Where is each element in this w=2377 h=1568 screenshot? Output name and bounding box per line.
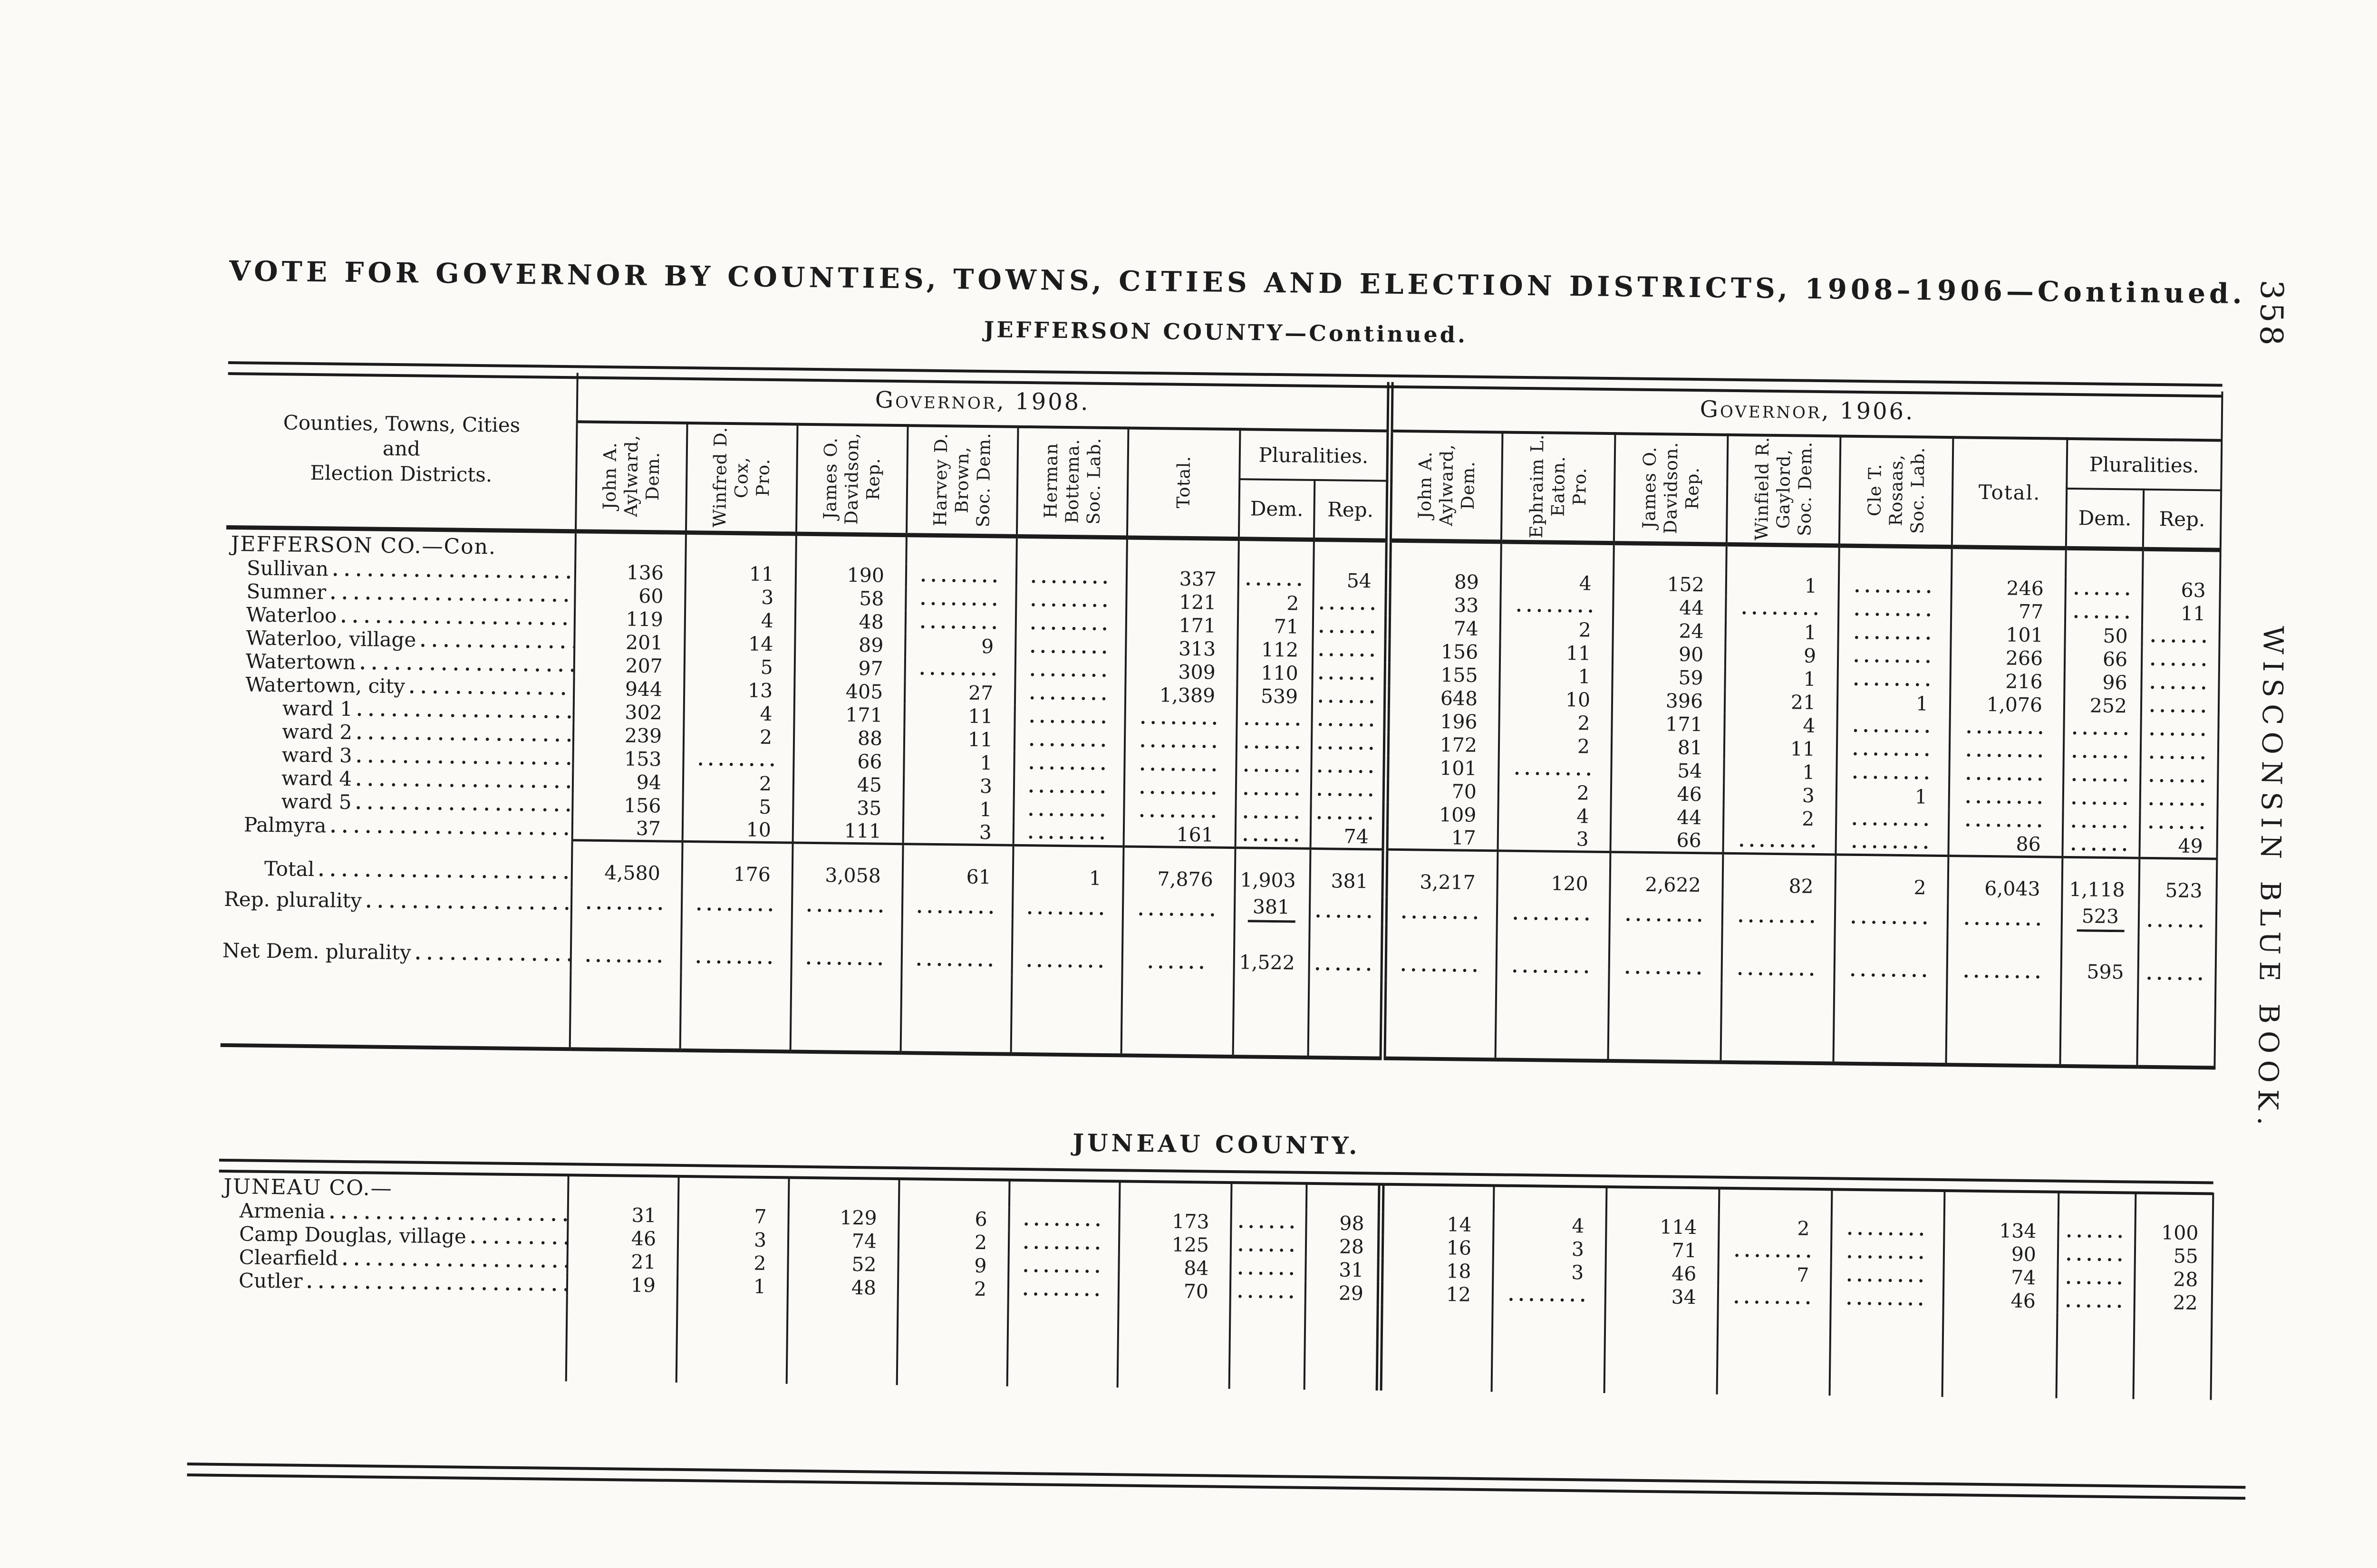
value-cell: 46 [1605, 1261, 1719, 1286]
value-cell: ........ [1610, 899, 1723, 928]
value-cell: 4 [1498, 803, 1611, 828]
value-cell [1388, 540, 1501, 570]
row-label: ward 4 [281, 766, 352, 790]
row-label: ward 5 [281, 789, 352, 814]
row-label-cell: ward 5.................................. [223, 789, 573, 816]
value-cell: ........ [1609, 926, 1722, 984]
dot-leader: .................................. [302, 1272, 566, 1295]
value-cell: 3,217 [1384, 849, 1498, 898]
value-cell: 31 [1305, 1258, 1381, 1282]
value-cell: ........ [1014, 751, 1125, 776]
filler-cell [1121, 977, 1234, 1057]
dot-leader: .................................. [351, 793, 571, 816]
value-cell: ........ [682, 889, 792, 917]
value-cell: ...... [1309, 923, 1384, 980]
value-cell: ........ [1831, 1240, 1944, 1265]
value-cell: 2 [1723, 806, 1836, 831]
page-number: 358 [2253, 279, 2290, 348]
value-cell: ........ [906, 564, 1017, 588]
value-cell: 11 [1500, 640, 1613, 665]
value-cell: 54 [1314, 568, 1389, 593]
value-cell: 60 [575, 583, 686, 608]
candidate-name: Cle T.Rosaas,Soc. Lab. [1864, 446, 1929, 534]
value-cell: 121 [1126, 589, 1238, 614]
value-cell: 88 [794, 725, 905, 750]
page-subtitle: JEFFERSON COUNTY—Continued. [229, 308, 2223, 356]
value-cell: 152 [1614, 572, 1727, 596]
value-cell: ........ [901, 918, 1012, 976]
value-cell: 31 [568, 1202, 678, 1227]
value-cell: ...... [1312, 731, 1387, 756]
value-cell: ........ [1948, 903, 2062, 932]
value-cell: 1 [903, 797, 1014, 821]
filler-cell [680, 972, 792, 1052]
candidate-header: HermanBottema.Soc. Lab. [1017, 427, 1129, 538]
value-cell [906, 535, 1017, 565]
value-cell: ........ [1838, 621, 1951, 645]
value-cell: ........ [1949, 762, 2064, 787]
value-cell: ...... [1231, 1233, 1306, 1258]
value-cell: 84 [1119, 1255, 1231, 1280]
total-header: Total. [1952, 437, 2068, 548]
value-cell [1726, 545, 1839, 575]
value-cell: 2 [1500, 617, 1614, 642]
value-cell: 4,580 [571, 840, 682, 889]
row-label-cell: Watertown...............................… [225, 649, 575, 676]
value-cell: 12 [1380, 1282, 1493, 1307]
value-cell: 2,622 [1610, 852, 1723, 901]
filler-cell [676, 1297, 788, 1384]
value-cell: ........ [1831, 1217, 1944, 1241]
value-cell [1832, 1188, 1945, 1218]
filler-cell [1383, 980, 1497, 1060]
dot-leader: .................................. [338, 1250, 567, 1272]
row-label: ward 3 [281, 743, 352, 767]
row-label-cell: Cutler.................................. [218, 1269, 568, 1296]
value-cell: ...... [2142, 624, 2220, 648]
value-cell [1314, 540, 1389, 569]
filler-cell [1118, 1302, 1230, 1389]
value-cell: ........ [1721, 928, 1835, 985]
value-cell: ........ [1015, 705, 1125, 730]
value-cell: 171 [1126, 613, 1238, 637]
value-cell: 153 [573, 746, 684, 771]
value-cell: 16 [1381, 1235, 1494, 1260]
value-cell [1120, 1180, 1232, 1210]
value-cell: 246 [1952, 576, 2066, 600]
value-cell: ........ [1831, 1287, 1944, 1311]
value-cell: 4 [684, 701, 794, 726]
row-label-cell: Sullivan................................… [226, 556, 576, 583]
value-cell: ...... [1312, 662, 1387, 686]
value-cell: 34 [1605, 1284, 1719, 1309]
value-cell: 313 [1126, 636, 1238, 661]
row-label: Rep. plurality [224, 887, 362, 912]
value-cell: 74 [788, 1228, 899, 1253]
value-cell [796, 534, 907, 564]
value-cell: ........ [1950, 715, 2064, 740]
value-cell: 1 [1836, 784, 1950, 808]
value-cell: 46 [1611, 781, 1724, 806]
book-margin-title: WISCONSIN BLUE BOOK. [2251, 625, 2290, 1132]
value-cell: 28 [2135, 1267, 2213, 1291]
value-cell: 18 [1380, 1259, 1493, 1283]
value-cell: 48 [795, 609, 906, 634]
value-cell: ........ [681, 916, 792, 973]
value-cell [1016, 537, 1127, 567]
value-cell: ........ [1014, 775, 1125, 799]
value-cell: ...... [1312, 708, 1387, 732]
value-cell: ........ [1947, 930, 2061, 988]
plurality-col-header: Rep. [1314, 480, 1389, 541]
value-cell: ........ [1013, 893, 1123, 921]
value-cell: 13 [684, 678, 795, 702]
value-cell: 523 [2062, 904, 2139, 933]
value-cell: 71 [1238, 614, 1314, 638]
value-cell: 94 [573, 770, 684, 794]
value-cell: 114 [1606, 1214, 1719, 1239]
plurality-subtraction-value: 381 [1247, 895, 1295, 923]
value-cell: ........ [1722, 901, 1836, 929]
filler-cell [1233, 978, 1309, 1058]
dot-leader: .................................. [362, 892, 570, 914]
row-label: Waterloo, village [246, 626, 416, 651]
value-cell: 24 [1613, 618, 1726, 643]
value-cell: ........ [1838, 644, 1951, 669]
value-cell: 1,076 [1950, 692, 2065, 717]
value-cell: ........ [906, 610, 1016, 635]
row-label-cell: JUNEAU CO.— [219, 1170, 569, 1202]
row-label: Sullivan [247, 556, 329, 580]
value-cell: ...... [2065, 600, 2143, 625]
value-cell: ........ [1015, 682, 1126, 706]
total-label: Total. [1173, 456, 1195, 509]
value-cell: ...... [2062, 833, 2140, 858]
value-cell: ........ [1009, 1208, 1120, 1232]
value-cell: 2 [899, 1230, 1009, 1254]
value-cell: ...... [2058, 1289, 2135, 1314]
value-cell: 61 [902, 844, 1013, 893]
row-label-cell: Armenia.................................… [218, 1199, 568, 1226]
value-cell: 1 [904, 750, 1015, 775]
value-cell: 100 [2135, 1221, 2213, 1245]
value-cell: 337 [1127, 566, 1239, 591]
value-cell: 3 [903, 820, 1014, 845]
candidate-name: Harvey D.Brown,Soc. Dem. [929, 432, 995, 528]
filler-cell [1946, 986, 2061, 1066]
row-label: Palmyra [244, 813, 327, 837]
value-cell: ...... [1230, 1280, 1306, 1304]
filler-cell [1830, 1310, 1943, 1397]
row-label-cell: Palmyra.................................… [223, 812, 573, 840]
candidate-name: Ephraim L.Eaton.Pro. [1526, 434, 1591, 539]
value-cell: 2 [677, 1251, 788, 1275]
row-label-cell: Sumner.................................. [225, 579, 575, 606]
value-cell: ...... [2063, 763, 2141, 788]
value-cell: ........ [1949, 785, 2064, 810]
value-cell: 89 [795, 632, 906, 657]
value-cell: 89 [1388, 569, 1501, 594]
value-cell: 120 [1497, 851, 1610, 900]
value-cell: ...... [2141, 694, 2219, 718]
value-cell: 381 [1235, 895, 1310, 923]
juneau-county-table: JUNEAU CO.—Armenia......................… [217, 1170, 2214, 1400]
value-cell: 1 [1724, 760, 1837, 784]
value-cell [899, 1178, 1010, 1208]
value-cell: 156 [572, 793, 683, 818]
value-cell: 112 [1237, 637, 1313, 662]
value-cell: ........ [1125, 706, 1237, 731]
value-cell [2135, 1192, 2213, 1222]
value-cell [1606, 1186, 1720, 1216]
row-label-cell: Rep. plurality..........................… [222, 884, 572, 914]
value-cell: ........ [570, 915, 681, 972]
value-cell: ...... [1311, 801, 1386, 826]
value-cell [1944, 1190, 2059, 1220]
value-cell: ........ [1008, 1254, 1119, 1279]
value-cell: 71 [1606, 1238, 1719, 1262]
dot-leader: .................................. [329, 560, 575, 583]
plurality-col-header: Dem. [1239, 479, 1314, 540]
candidate-header: Ephraim L.Eaton.Pro. [1501, 432, 1615, 543]
value-cell: 14 [685, 631, 795, 656]
value-cell: 125 [1119, 1232, 1231, 1257]
value-cell: ...... [2063, 810, 2140, 834]
value-cell: 405 [794, 679, 905, 703]
value-cell: ........ [1383, 924, 1497, 981]
pluralities-header: Pluralities. [2067, 439, 2222, 491]
value-cell: 45 [793, 772, 904, 797]
value-cell: 6,043 [1948, 856, 2062, 904]
row-label-cell: ward 1.................................. [224, 696, 574, 723]
row-label-cell: Watertown, city.........................… [224, 673, 574, 700]
group-title: Governor, 1906. [1390, 382, 2222, 441]
value-cell: 37 [572, 816, 683, 841]
value-cell: 66 [793, 749, 904, 773]
value-cell: 944 [574, 676, 685, 701]
value-cell: 58 [795, 586, 906, 610]
value-cell: 111 [793, 818, 904, 844]
value-cell: ........ [1016, 612, 1127, 636]
dot-leader: .................................. [352, 723, 572, 746]
table-header: Counties, Towns, CitiesandElection Distr… [226, 369, 2222, 550]
value-cell: 7 [678, 1204, 789, 1229]
value-cell [2058, 1191, 2136, 1221]
value-cell: 309 [1125, 659, 1237, 684]
value-cell: ...... [1236, 777, 1312, 801]
candidate-name: John A.Aylward,Dem. [599, 434, 664, 517]
row-label-cell: JEFFERSON CO.—Con. [226, 528, 576, 560]
value-cell: 239 [573, 723, 684, 748]
value-cell [1719, 1187, 1832, 1217]
value-cell: ........ [1949, 808, 2063, 833]
value-cell: 1,389 [1125, 683, 1237, 707]
value-cell: ........ [1014, 798, 1124, 823]
candidate-header: Harvey D.Brown,Soc. Dem. [907, 425, 1018, 536]
value-cell: ...... [2141, 717, 2219, 741]
candidate-header: James O.Davidson.Rep. [1614, 433, 1728, 544]
value-cell: 2 [1835, 855, 1948, 904]
filler-cell [1011, 976, 1122, 1056]
candidate-name: James O.Davidson.Rep. [1638, 441, 1704, 534]
value-cell: 29 [1305, 1281, 1381, 1305]
value-cell: ...... [2140, 764, 2218, 788]
filler-cell [791, 973, 902, 1053]
row-header-line: Election Districts. [227, 460, 576, 489]
row-label: Total [264, 857, 315, 881]
value-cell: 2 [684, 724, 794, 749]
value-cell: 201 [574, 630, 685, 654]
juneau-rows: JUNEAU CO.—Armenia......................… [217, 1170, 2213, 1400]
row-label: Watertown, city [245, 673, 405, 698]
value-cell: ........ [1014, 821, 1124, 847]
value-cell: ...... [1236, 824, 1311, 848]
row-label-cell: ward 2.................................. [224, 719, 574, 746]
value-cell: 66 [1610, 828, 1723, 853]
dot-leader: .................................. [337, 606, 574, 629]
row-label: ward 1 [282, 696, 353, 721]
value-cell: 595 [2061, 932, 2138, 989]
filler-cell [1495, 981, 1609, 1061]
value-cell: 2 [1238, 591, 1314, 615]
value-cell: ........ [1837, 714, 1950, 739]
value-cell: 11 [2142, 601, 2220, 625]
value-cell: 1,118 [2062, 857, 2139, 905]
value-cell: 1 [677, 1274, 788, 1299]
candidate-header: Cle T.Rosaas,Soc. Lab. [1839, 436, 1953, 547]
value-cell: 48 [788, 1275, 899, 1299]
filler-cell [1304, 1304, 1380, 1391]
plurality-col-header: Dem. [2066, 489, 2144, 549]
row-label-cell: Waterloo, village.......................… [225, 626, 575, 653]
filler-cell [1308, 979, 1384, 1058]
double-rule-bottom [187, 1462, 2245, 1500]
value-cell: 2 [683, 771, 794, 796]
value-cell: 11 [686, 561, 796, 586]
filler-cell [2133, 1314, 2212, 1400]
value-cell: 52 [788, 1251, 899, 1276]
value-cell: 190 [796, 562, 907, 587]
value-cell: 77 [1951, 599, 2066, 624]
value-cell: 161 [1124, 822, 1236, 847]
row-label: Waterloo [246, 603, 337, 627]
value-cell: ........ [791, 917, 902, 975]
value-cell: ........ [905, 657, 1015, 682]
value-cell: ...... [2140, 810, 2218, 835]
value-cell: 6 [899, 1206, 1009, 1231]
value-cell: ........ [1839, 574, 1952, 599]
value-cell: 35 [793, 795, 904, 820]
value-cell: 266 [1951, 645, 2065, 670]
value-cell: 9 [1725, 643, 1838, 668]
value-cell [1614, 543, 1727, 573]
value-cell: ........ [1500, 594, 1614, 618]
value-cell: 136 [575, 560, 686, 585]
value-cell: 70 [1119, 1279, 1231, 1303]
filler-cell [1942, 1311, 2058, 1398]
value-cell: 49 [2139, 834, 2217, 858]
value-cell: ........ [1837, 667, 1951, 692]
row-header: Counties, Towns, CitiesandElection Distr… [226, 369, 578, 531]
row-label-cell: ward 4.................................. [223, 766, 573, 793]
filler-cell [2056, 1313, 2134, 1399]
row-label: Armenia [239, 1199, 325, 1223]
value-cell: 3 [678, 1227, 789, 1252]
value-cell: 10 [683, 818, 793, 843]
row-label: ward 2 [282, 720, 353, 744]
value-cell: 176 [682, 841, 792, 890]
value-cell: 3 [1724, 783, 1837, 808]
value-cell: 171 [1612, 712, 1725, 736]
value-cell: 74 [1388, 616, 1501, 640]
value-cell: ...... [1238, 568, 1314, 592]
filler-cell [221, 967, 571, 1049]
value-cell: ...... [2141, 671, 2219, 695]
value-cell: ........ [1831, 1263, 1944, 1288]
value-cell: ...... [1310, 896, 1385, 924]
filler-cell [1833, 985, 1947, 1065]
dot-leader: .................................. [352, 747, 572, 769]
value-cell: 55 [2135, 1244, 2213, 1268]
plurality-col-header: Rep. [2143, 490, 2221, 550]
value-cell: 3,058 [792, 843, 903, 892]
value-cell: ........ [1838, 597, 1952, 622]
value-cell: ........ [1016, 565, 1127, 590]
value-cell: 19 [567, 1272, 678, 1297]
value-cell: ........ [1015, 635, 1126, 660]
value-cell: ........ [1719, 1239, 1832, 1264]
dot-leader: .................................. [314, 860, 571, 883]
value-cell: 90 [1944, 1241, 2058, 1266]
value-cell: 648 [1387, 685, 1500, 710]
row-label-cell: Net Dem. plurality......................… [222, 911, 571, 971]
value-cell: ...... [1230, 1257, 1306, 1281]
value-cell: ...... [1311, 778, 1386, 802]
value-cell: ........ [1123, 894, 1235, 923]
value-cell: 109 [1385, 802, 1498, 827]
value-cell: ........ [571, 888, 682, 916]
value-cell: 1 [1499, 664, 1613, 688]
value-cell: 21 [1725, 690, 1838, 714]
value-cell: ...... [1313, 615, 1388, 639]
value-cell: 539 [1237, 684, 1313, 708]
value-cell: ...... [1312, 685, 1387, 709]
value-cell: ........ [1836, 830, 1949, 856]
value-cell: 1 [1726, 573, 1839, 598]
value-cell: 523 [2139, 858, 2217, 906]
value-cell: 172 [1386, 732, 1499, 757]
value-cell [789, 1176, 899, 1206]
value-cell [678, 1175, 789, 1205]
value-cell: ...... [2139, 905, 2217, 933]
row-label: Clearfield [239, 1245, 338, 1270]
filler-cell [1229, 1303, 1305, 1390]
row-label-cell: Clearfield..............................… [218, 1245, 568, 1272]
value-cell: 381 [1310, 848, 1385, 897]
value-cell: 59 [1612, 665, 1725, 690]
value-cell: 110 [1237, 661, 1313, 685]
row-header-line: Counties, Towns, Cities [227, 410, 576, 439]
value-cell: 96 [2064, 670, 2142, 694]
value-cell: 5 [683, 794, 793, 819]
value-cell: 81 [1612, 735, 1725, 760]
dot-leader: .................................. [326, 817, 571, 840]
row-label-cell: Total.................................. [222, 836, 572, 887]
row-label: Net Dem. plurality [222, 939, 411, 964]
page-title: VOTE FOR GOVERNOR BY COUNTIES, TOWNS, CI… [229, 255, 2224, 310]
value-cell: 86 [1948, 832, 2063, 857]
value-cell: 10 [1499, 687, 1613, 712]
